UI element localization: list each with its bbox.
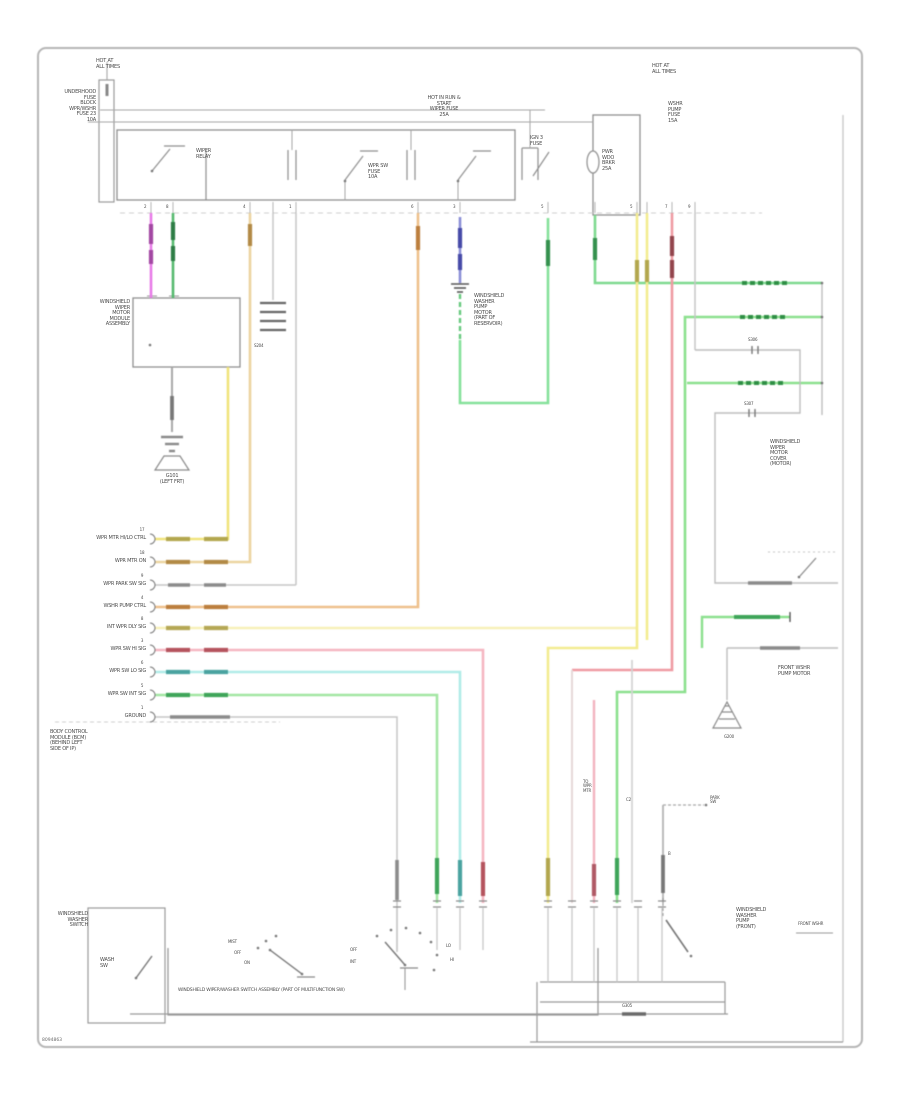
diagram-label: B <box>668 852 690 856</box>
diagram-label: G101 (LEFT FRT) <box>146 474 198 485</box>
bcm-pin-label: WPR SW LO SIG <box>36 669 146 675</box>
bcm-pin-label: WPR MTR ON <box>36 559 146 565</box>
diagram-label: HOT AT ALL TIMES <box>96 59 142 70</box>
diagram-label: MIST <box>228 940 254 944</box>
wiring-diagram-page: HOT AT ALL TIMESUNDERHOOD FUSE BLOCK WPR… <box>0 0 900 1100</box>
diagram-label: WPR SW FUSE 10A <box>368 164 408 181</box>
labels-layer: HOT AT ALL TIMESUNDERHOOD FUSE BLOCK WPR… <box>0 0 900 1100</box>
diagram-label: WINDSHIELD WIPER MOTOR COVER (MOTOR) <box>770 440 840 468</box>
diagram-label: UNDERHOOD FUSE BLOCK WPR/WSHR FUSE 23 10… <box>44 90 96 124</box>
pin-number: 5 <box>136 684 148 688</box>
bcm-pin-label: GROUND <box>36 714 146 720</box>
diagram-label: WIPER RELAY <box>196 149 246 160</box>
diagram-label: S306 <box>748 338 778 342</box>
diagram-label: IGN 3 FUSE <box>530 136 566 147</box>
diagram-label: HOT AT ALL TIMES <box>652 64 698 75</box>
diagram-label: TO WPR MTR <box>583 780 609 793</box>
diagram-label: PARK SW <box>710 796 744 805</box>
pin-number: 18 <box>136 551 148 555</box>
connector-pin-number: 7 <box>665 205 675 209</box>
diagram-label: LO <box>446 944 472 948</box>
diagram-label: INT <box>350 960 376 964</box>
connector-pin-number: 5 <box>630 205 640 209</box>
diagram-label: ON <box>244 961 270 965</box>
bcm-pin-label: WPR MTR HI/LO CTRL <box>36 536 146 542</box>
diagram-label: WASH SW <box>100 958 132 969</box>
diagram-label: BODY CONTROL MODULE (BCM) (BEHIND LEFT S… <box>50 730 162 752</box>
connector-pin-number: 2 <box>144 205 154 209</box>
diagram-label: PWR WDO BRKR 25A <box>602 150 638 172</box>
bcm-pin-label: WPR SW INT SIG <box>36 692 146 698</box>
diagram-label: OFF <box>350 948 376 952</box>
diagram-label: S204 <box>254 344 284 348</box>
bcm-pin-label: INT WPR DLY SIG <box>36 625 146 631</box>
diagram-label: C2 <box>626 798 646 802</box>
page-code: 8094863 <box>42 1038 62 1043</box>
pin-number: 6 <box>136 661 148 665</box>
diagram-label: WINDSHIELD WASHER PUMP MOTOR (PART OF RE… <box>474 294 546 328</box>
diagram-label: WSHR PUMP FUSE 15A <box>668 102 708 124</box>
connector-pin-number: 5 <box>541 205 551 209</box>
connector-pin-number: 1 <box>289 205 299 209</box>
pin-number: 8 <box>136 617 148 621</box>
bcm-pin-label: WPR PARK SW SIG <box>36 582 146 588</box>
diagram-label: FRONT WSHR <box>798 922 858 926</box>
bcm-pin-label: WSHR PUMP CTRL <box>36 604 146 610</box>
diagram-label: WINDSHIELD WIPER/WASHER SWITCH ASSEMBLY … <box>178 988 498 993</box>
pin-number: 17 <box>136 528 148 532</box>
pin-number: 9 <box>136 574 148 578</box>
diagram-label: HI <box>450 958 476 962</box>
pin-number: 4 <box>136 596 148 600</box>
diagram-label: OFF <box>234 951 260 955</box>
connector-pin-number: 9 <box>688 205 698 209</box>
bcm-pin-label: WPR SW HI SIG <box>36 647 146 653</box>
diagram-label: HOT IN RUN & START WIPER FUSE 25A <box>412 96 476 118</box>
diagram-label: G200 <box>712 735 746 739</box>
connector-pin-number: 8 <box>166 205 176 209</box>
diagram-label: FRONT WSHR PUMP MOTOR <box>778 666 842 677</box>
diagram-label: G305 <box>622 1004 650 1008</box>
pin-number: 3 <box>136 639 148 643</box>
diagram-label: WINDSHIELD WASHER SWITCH <box>42 912 88 929</box>
connector-pin-number: 4 <box>243 205 253 209</box>
connector-pin-number: 6 <box>411 205 421 209</box>
diagram-label: WINDSHIELD WASHER PUMP (FRONT) <box>736 908 796 930</box>
diagram-label: WINDSHIELD WIPER MOTOR MODULE ASSEMBLY <box>60 300 130 328</box>
diagram-label: S307 <box>744 402 774 406</box>
connector-pin-number: 3 <box>453 205 463 209</box>
pin-number: 1 <box>136 706 148 710</box>
